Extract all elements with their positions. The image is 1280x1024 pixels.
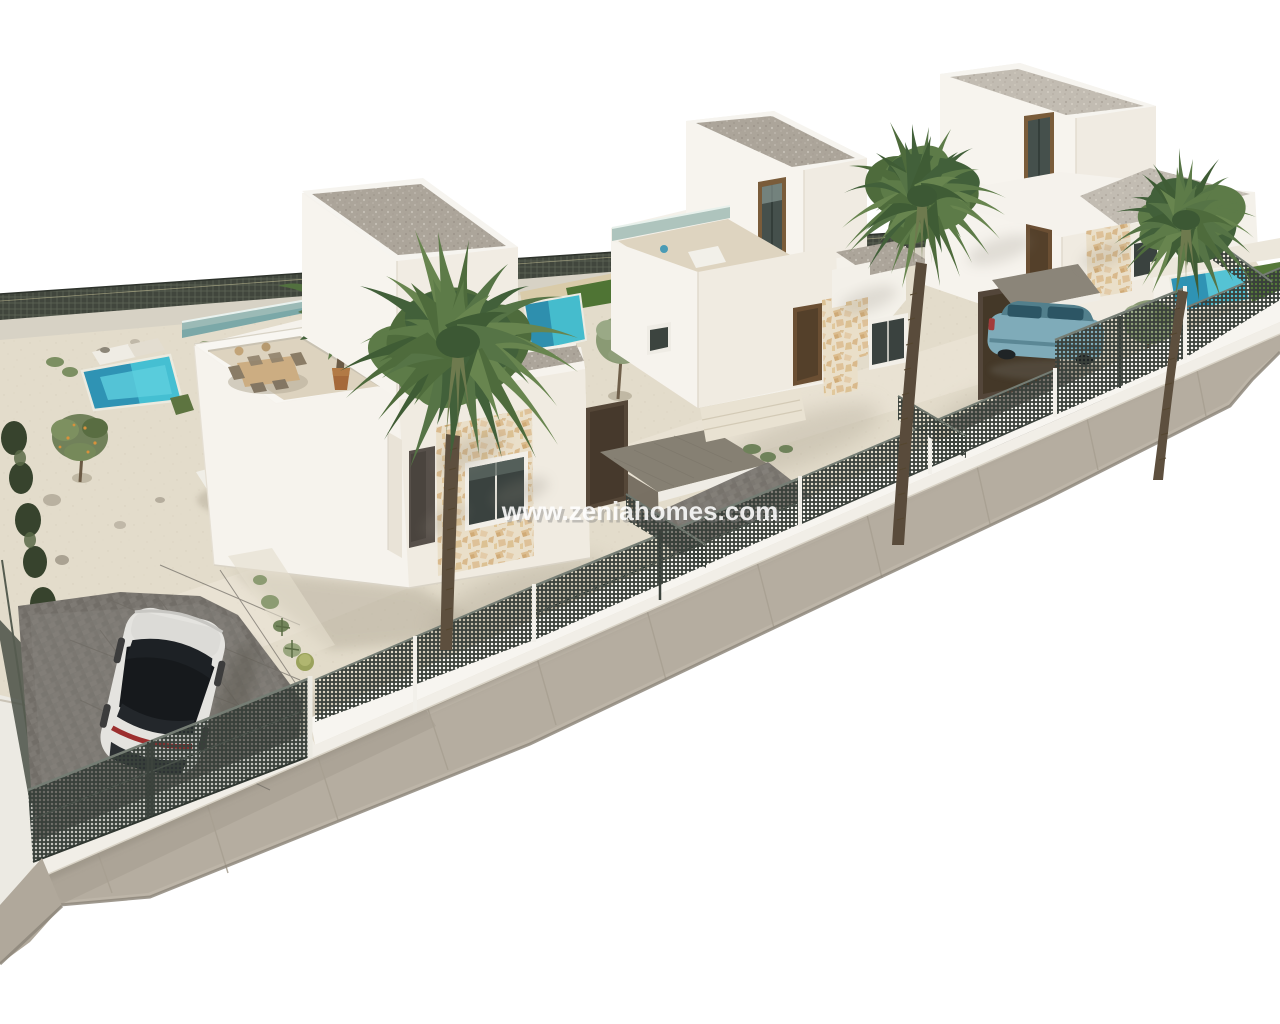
svg-text:www.zeniahomes.com: www.zeniahomes.com <box>501 496 778 526</box>
